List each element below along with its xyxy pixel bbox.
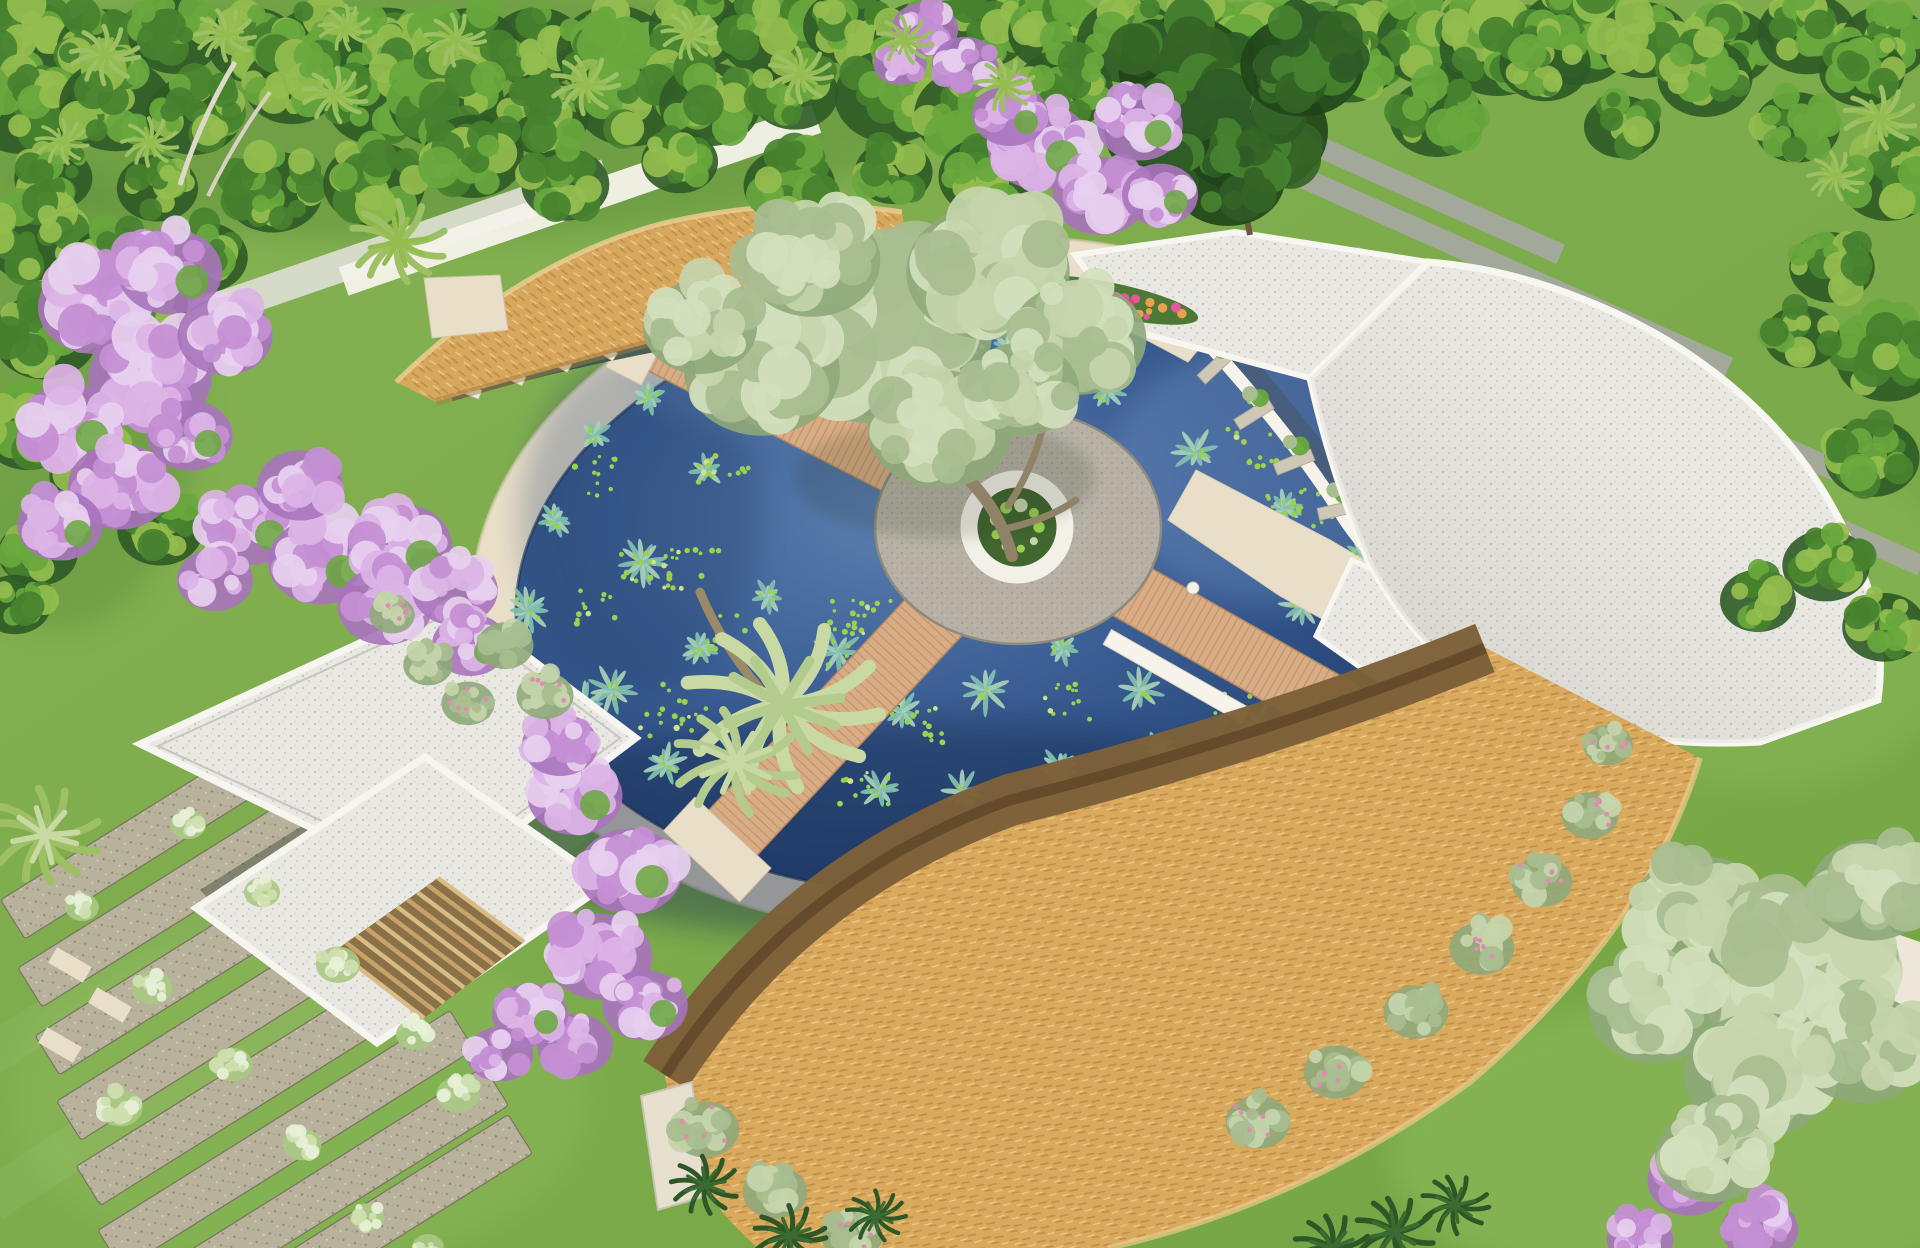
pond-sphere-ornament <box>1187 582 1199 594</box>
aerial-resort-rendering <box>0 0 1920 1248</box>
flower <box>1143 314 1149 320</box>
flower <box>1158 303 1168 313</box>
tree-canopy <box>418 115 523 198</box>
planter-shrub <box>1030 537 1038 545</box>
rendering-canvas <box>0 0 1920 1248</box>
flower <box>1145 298 1154 307</box>
tree-canopy <box>1819 35 1905 107</box>
pillar-vine <box>1242 386 1258 402</box>
flower <box>1171 303 1181 313</box>
garden-shrub <box>403 638 453 685</box>
pavilion-west-terrace <box>424 275 508 338</box>
pillar-vine <box>1283 435 1297 449</box>
flower <box>1146 308 1152 314</box>
planter-shrub <box>1017 545 1025 553</box>
